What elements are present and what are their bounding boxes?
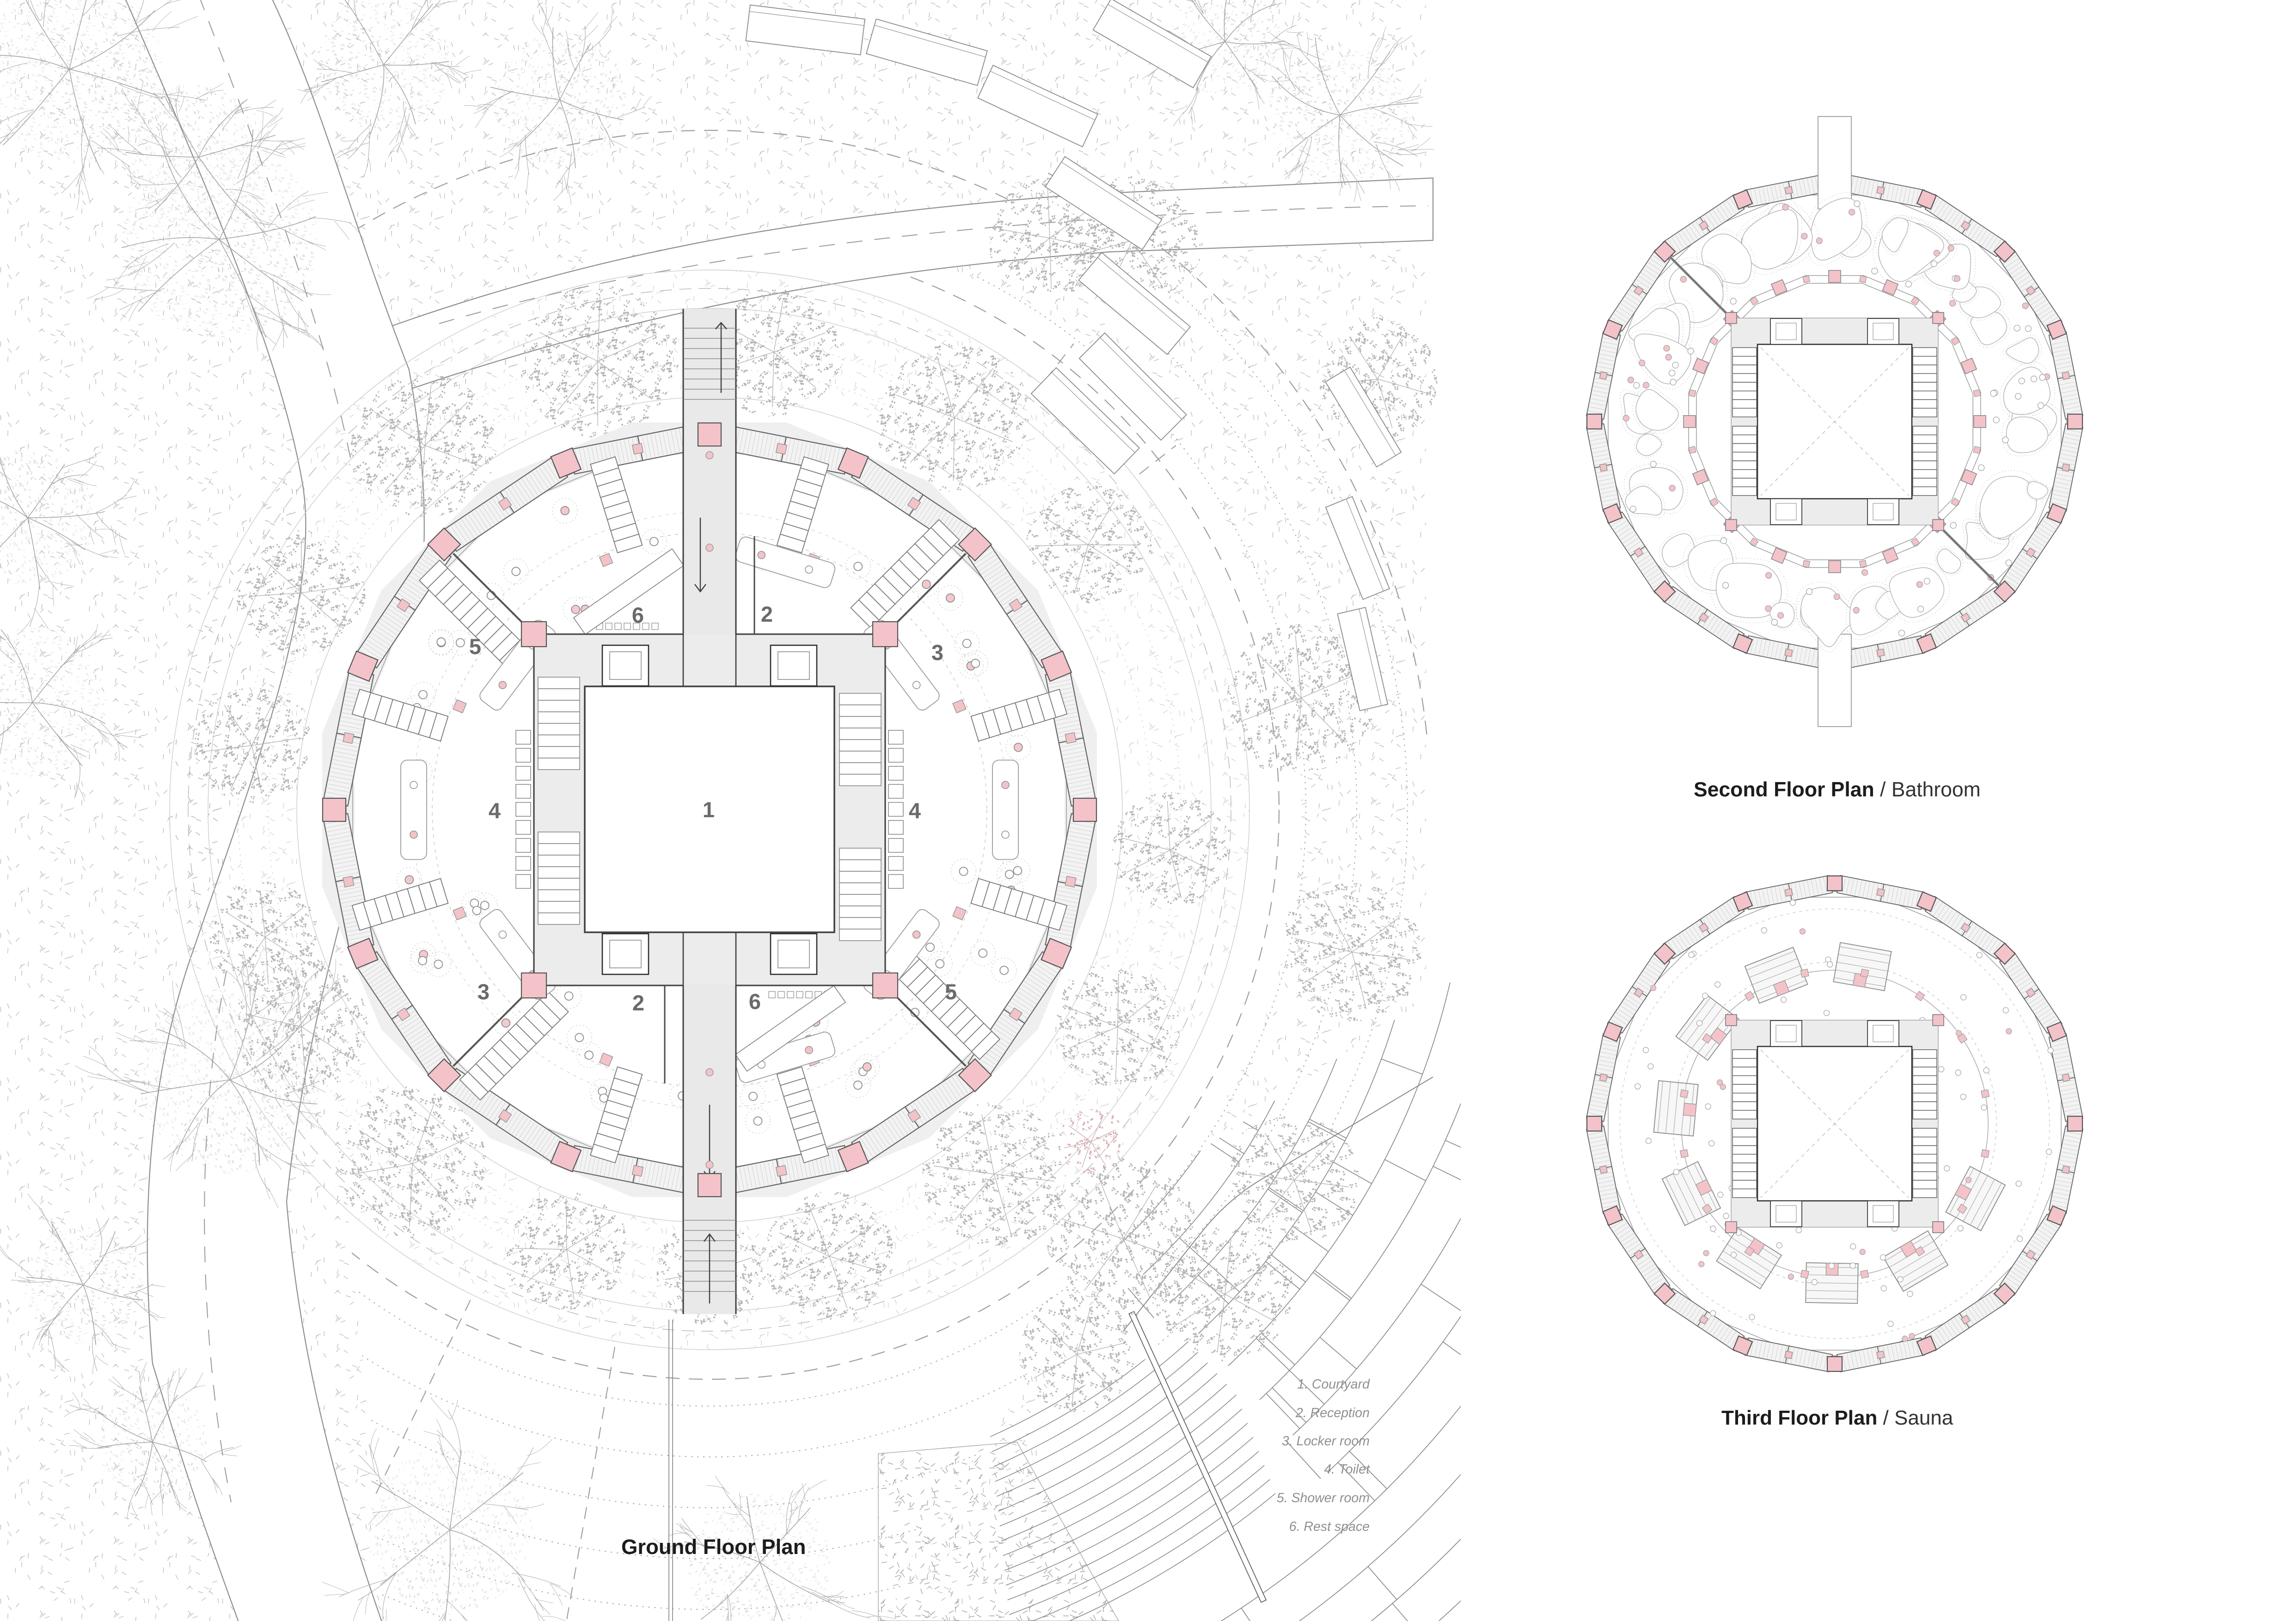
svg-text:4: 4 xyxy=(909,798,921,823)
svg-text:6: 6 xyxy=(632,603,644,627)
svg-text:3: 3 xyxy=(478,979,490,1004)
svg-text:6: 6 xyxy=(749,989,761,1014)
svg-text:2: 2 xyxy=(632,991,644,1015)
svg-text:5: 5 xyxy=(469,634,481,659)
svg-text:Third Floor Plan / Sauna: Third Floor Plan / Sauna xyxy=(1721,1407,1953,1429)
svg-text:1: 1 xyxy=(703,797,715,822)
svg-text:6. Rest space: 6. Rest space xyxy=(1289,1519,1370,1534)
svg-text:2. Reception: 2. Reception xyxy=(1295,1406,1370,1420)
svg-text:3. Locker room: 3. Locker room xyxy=(1282,1434,1370,1449)
svg-text:2: 2 xyxy=(761,602,773,626)
svg-text:1. Courtyard: 1. Courtyard xyxy=(1297,1377,1370,1392)
svg-text:5: 5 xyxy=(945,979,957,1004)
svg-text:5. Shower room: 5. Shower room xyxy=(1277,1491,1370,1505)
svg-text:3: 3 xyxy=(931,640,943,665)
svg-text:Second Floor Plan / Bathroom: Second Floor Plan / Bathroom xyxy=(1694,778,1981,801)
svg-text:4. Toilet: 4. Toilet xyxy=(1324,1462,1370,1477)
svg-text:4: 4 xyxy=(489,798,501,823)
svg-text:Ground Floor Plan: Ground Floor Plan xyxy=(621,1535,806,1559)
